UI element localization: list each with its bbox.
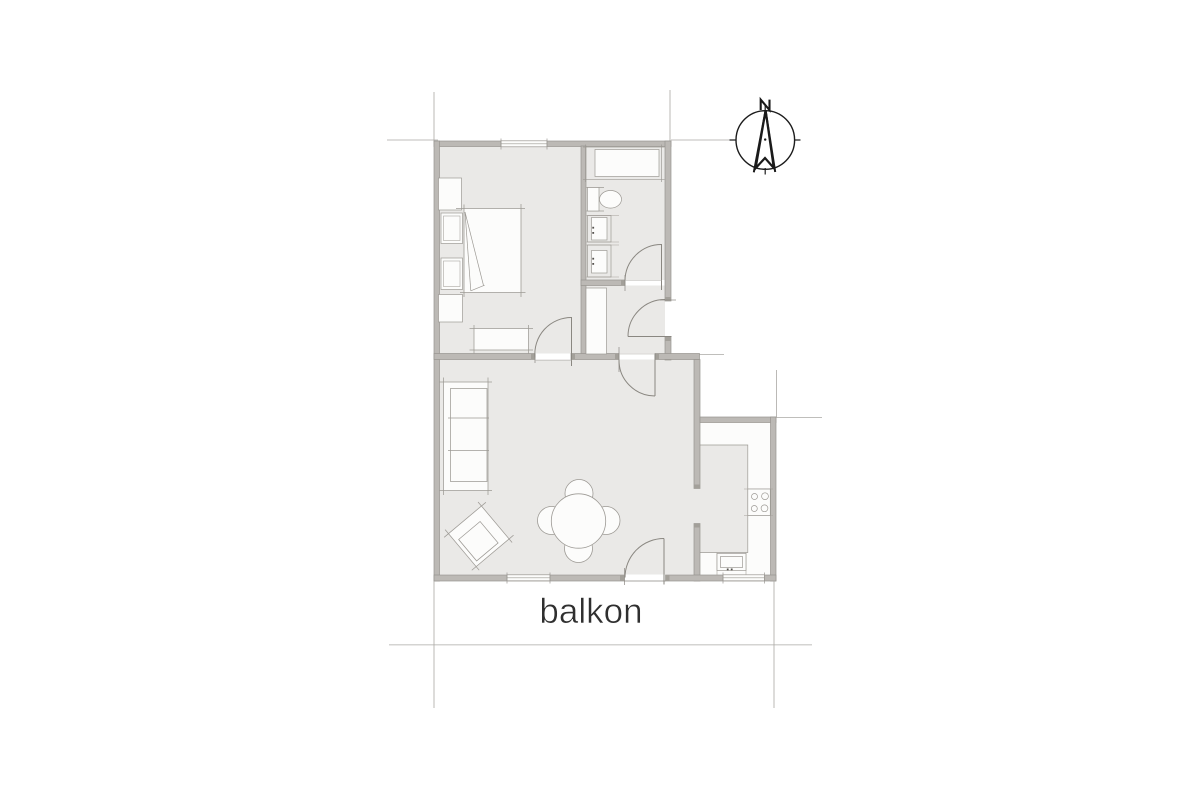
svg-text:balkon: balkon <box>539 592 642 631</box>
